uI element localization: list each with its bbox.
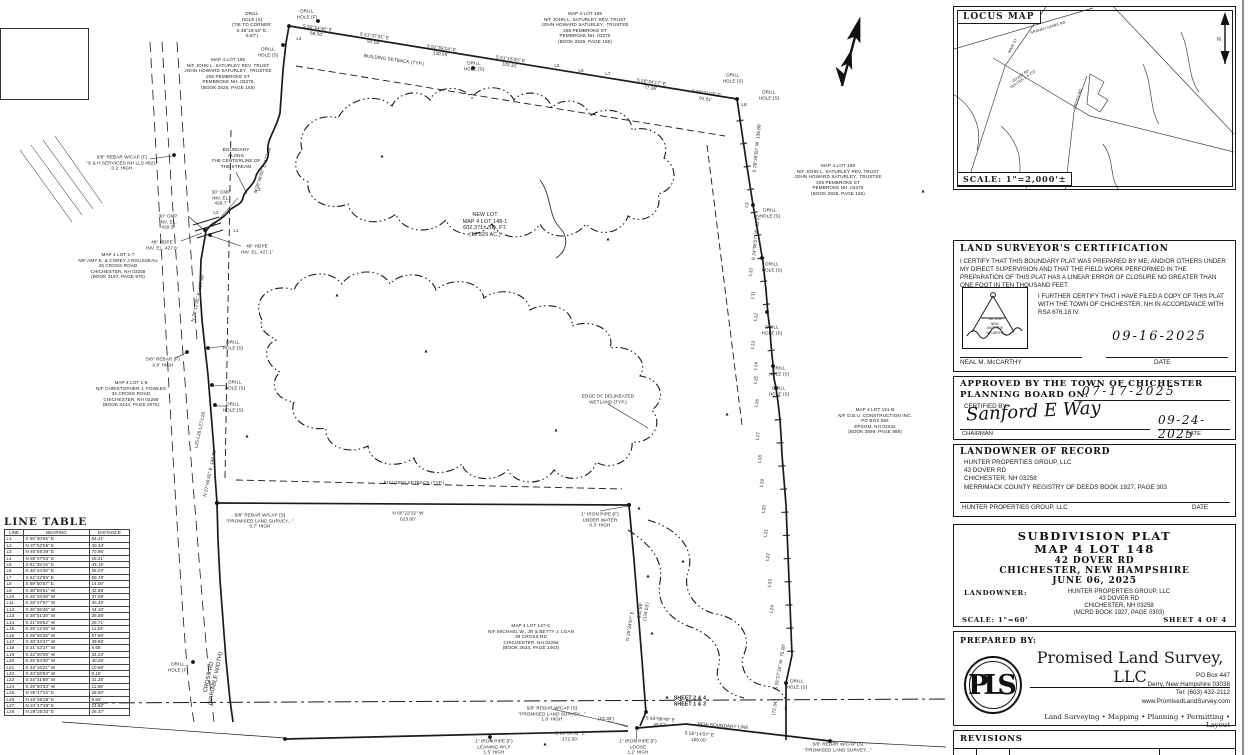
culvert-label: 30" CMP INV. EL. 429.5' [159, 214, 178, 231]
line-number-label: L20 [761, 505, 768, 514]
line-number-label: L1 [233, 228, 238, 234]
drill-hole-label: DRILL HOLE (S) [464, 60, 485, 71]
tree-symbol: ▴ [665, 694, 668, 701]
bearing-label: S 60°04'09" E 172.50' [555, 730, 585, 741]
approval-panel: APPROVED BY THE TOWN OF CHICHESTER PLANN… [953, 376, 1236, 440]
abutter-label: MAP 4 LOT 1-7 N/F AMY E. & COREY J ROUSS… [78, 252, 157, 280]
monument-label: 5/8" REBAR (F) 0.9' HIGH [146, 356, 180, 367]
line-number-label: L7 [605, 71, 610, 77]
pls-logo-monogram: PLS [968, 670, 1012, 701]
monument-label: 1" IRON PIPE (F) LEANING W'LY 1.5' HIGH [475, 739, 512, 755]
bearing-label: S 51°37'31" E 91.08' [359, 31, 390, 46]
drill-hole-label: DRILL HOLE (S) [762, 324, 783, 335]
line-number-label: L13 [750, 341, 757, 350]
landowner-record-panel: LANDOWNER OF RECORD HUNTER PROPERTIES GR… [953, 444, 1236, 517]
stream-label: BOUNDARY ALONG THE CENTERLINE OF THE STR… [212, 147, 261, 169]
line-number-label: L18 [757, 455, 764, 464]
company-address-line: Derry, New Hampshire 03038 [1072, 681, 1230, 690]
landowner-record-line: 43 DOVER RD [964, 467, 1167, 475]
company-address-line: PO Box 447 [1072, 672, 1230, 681]
bearing-label: S 55°14'07" E 159.00' [684, 730, 714, 743]
company-website: www.PromisedLandSurvey.com [1072, 698, 1230, 707]
locus-map-inner-border [957, 10, 1233, 187]
chairman-signature: Sanford E Way [966, 397, 1102, 425]
chairman-label: CHAIRMAN [962, 431, 993, 437]
locus-map-scale: SCALE: 1"=2,000'± [957, 172, 1072, 186]
line-number-label: L9 [744, 202, 750, 208]
approval-date-handwritten: 07-17-2025 [1082, 384, 1176, 398]
landowner-record-line: HUNTER PROPERTIES GROUP, LLC [964, 459, 1167, 467]
tie-label: (72.34') [771, 699, 779, 716]
road-label: CROSS RD (VARIABLE WIDTH) [200, 650, 225, 706]
culvert-label: 30" CMP INV. EL. 428.7' [212, 190, 231, 207]
plat-title: SUBDIVISION PLAT [954, 529, 1235, 543]
drill-hole-label: DRILL HOLE (S) [769, 385, 790, 396]
date-label: DATE [1154, 359, 1171, 366]
prepared-by-label: PREPARED BY: [960, 635, 1037, 645]
surveyor-certification-panel: LAND SURVEYOR'S CERTIFICATION I CERTIFY … [953, 240, 1236, 372]
tree-symbol: ▴ [650, 630, 653, 637]
tree-symbol: ▴ [606, 236, 609, 243]
line-number-label: L22 [765, 553, 772, 562]
drill-hole-label: DRILL HOLE (S) (TIE TO CORNER: S 48°16'4… [232, 11, 272, 39]
culvert-label: 48" HDPE INV. EL. 427.6' [146, 239, 178, 250]
bearing-label: N 26°48'00" E 177.94' [253, 146, 273, 194]
abutter-label: MAP 4 LOT 169 N/F JOHN L. SATURLEY REV. … [184, 57, 271, 91]
bearing-label: N 60°22'22" W 623.00' [392, 510, 423, 521]
drill-hole-label: DRILL HOLE (S) [223, 339, 244, 350]
survey-plat-sheet: DRILL HOLE (S) (TIE TO CORNER: S 48°16'4… [0, 0, 1251, 755]
setback-label: BUILDING SETBACK (TYP.) [384, 480, 445, 486]
title-landowner-line: 43 DOVER RD [1034, 596, 1204, 603]
locus-map-panel: LOCUS MAP SCALE: 1"=2,000'± [953, 6, 1236, 190]
line-number-label: L15 [753, 376, 760, 385]
surveyor-name: NEAL M. McCARTHY [960, 359, 1022, 366]
company-address-line: Tel: (603) 432-2112 [1072, 689, 1230, 698]
bearing-label: S 26°38'50" W 138.89' [752, 123, 763, 173]
approval-date-label: DATE [1186, 431, 1201, 437]
bearing-label: S 63°58'49" E 49.57' [645, 715, 675, 728]
abutter-label: MAP 4 LOT 1-8 N/F CHRISTOPHER J. FOWLES … [96, 380, 166, 408]
line-number-label: L12 [753, 313, 760, 322]
line-number-label: L2 [213, 210, 218, 216]
revisions-panel: REVISIONS [953, 730, 1236, 755]
tree-symbol: ▴ [543, 741, 546, 748]
drill-hole-label: DRILL HOLE (S) [225, 379, 246, 390]
title-scale: SCALE: 1"=60' [962, 616, 1028, 624]
certification-paragraph-1: I CERTIFY THAT THIS BOUNDARY PLAT WAS PR… [960, 258, 1230, 290]
abutter-label: MAP 4 LOT 169 N/F JOHN L. SATURLEY REV. … [541, 11, 628, 45]
line-number-label: L4 [296, 36, 301, 42]
revisions-title: REVISIONS [960, 734, 1023, 744]
line-number-label: L23 [767, 579, 774, 588]
monument-label: 5/8" REBAR W/CAP (S) "PROMISED LAND SURV… [226, 513, 293, 530]
drill-hole-label: DRILL HOLE (S) [762, 261, 783, 272]
tree-symbol: ▴ [380, 153, 383, 160]
bearing-label: S 51°16'35" E 103.31' [495, 54, 526, 69]
certification-paragraph-2: I FURTHER CERTIFY THAT I HAVE FILED A CO… [1038, 293, 1230, 317]
pls-logo: PLS [964, 656, 1022, 714]
tree-symbol: ▴ [424, 348, 427, 355]
title-sheet-number: SHEET 4 OF 4 [1163, 616, 1227, 624]
landowner-date-label: DATE [1192, 504, 1208, 511]
sheet-match-label: SHEET 2 & 4 SHEET 1 & 3 [674, 696, 706, 709]
new-boundary-label: NEW BOUNDARY LINE [697, 721, 748, 730]
bearing-label: N 26°12'35" E 187.69' [190, 274, 206, 322]
title-landowner-label: LANDOWNER: [964, 589, 1027, 597]
line-number-label: L11 [750, 291, 757, 299]
signature-line [960, 357, 1082, 358]
tree-symbol: ▴ [725, 411, 728, 418]
drill-hole-label: DRILL HOLE (S) [759, 89, 780, 100]
plat-date: JUNE 06, 2025 [954, 576, 1235, 586]
revisions-divider [1009, 748, 1010, 755]
revisions-header-line [954, 748, 1235, 749]
revisions-divider [976, 748, 977, 755]
monument-label: 5/8" REBAR W/CAP (F) "S & H SERVICES NH … [86, 155, 157, 172]
line-table-title: LINE TABLE [4, 516, 130, 528]
bearing-label: N 27°46'45" E 146.85' [202, 449, 218, 497]
line-number-label: L5 [554, 63, 559, 69]
culvert-label: 48" HDPE INV. EL. 427.1' [241, 243, 273, 254]
monument-label: 5/8" REBAR W/CAP (S) "PROMISED LAND SURV… [518, 706, 585, 723]
drill-hole-label: DRILL HOLE (S) [787, 678, 808, 689]
monument-label: 5/8" REBAR W/CAP (S) "PROMISED LAND SURV… [804, 741, 871, 752]
locus-map-title: LOCUS MAP [957, 10, 1041, 24]
abutter-label: MAP 4 LOT 169 N/F JOHN L. SATURLEY REV. … [794, 163, 881, 197]
line-number-label: L3 [255, 187, 260, 193]
bearing-label: S 24°56'07" W 61.22' [751, 214, 761, 261]
title-block-panel: SUBDIVISION PLAT MAP 4 LOT 148 42 DOVER … [953, 524, 1236, 627]
tree-symbol: ▴ [646, 573, 649, 580]
line-number-label: L8 [741, 102, 746, 108]
tree-symbol: ▴ [554, 427, 557, 434]
tree-symbol: ▴ [245, 433, 248, 440]
tree-symbol: ▴ [921, 188, 924, 195]
line-table: LINE TABLE LINEBEARINGDISTANCE L1S 60°30… [4, 516, 130, 716]
line-number-label: L17 [755, 432, 762, 441]
landowner-signature-line [960, 502, 1230, 503]
bearing-label: N 26°34'57" E [625, 611, 636, 641]
new-lot-label: NEW LOT MAP 4 LOT 148-1 602,371± SQ. FT.… [463, 212, 508, 238]
drill-hole-label: DRILL HOLE (F) [297, 8, 317, 19]
adjacent-sheet-corner [0, 28, 89, 100]
line-number-label: L19 [759, 479, 766, 488]
bearing-label: S 50°54'17" E 77.36' [636, 77, 667, 92]
drill-hole-label: DRILL HOLE (S) [760, 207, 781, 218]
line-number-label: L16 [754, 399, 761, 408]
certification-date-handwritten: 09-16-2025 [1112, 329, 1207, 344]
surveyor-seal: No. 1199 NEAL MATTHEW McCARTHY [962, 287, 1028, 349]
bearing-label: S 50°54'46" E 68.50' [302, 23, 333, 38]
drill-hole-label: DRILL HOLE (F) [168, 661, 188, 672]
certification-title: LAND SURVEYOR'S CERTIFICATION [960, 244, 1169, 254]
plat-address: 42 DOVER RD [954, 556, 1235, 566]
plat-map-lot: MAP 4 LOT 148 [954, 542, 1235, 556]
landowner-signature-name: HUNTER PROPERTIES GROUP, LLC [962, 504, 1068, 511]
tree-symbol: ▴ [681, 558, 684, 565]
line-number-label: L24 [769, 605, 776, 614]
north-arrow [831, 14, 867, 88]
drill-hole-label: DRILL HOLE (S) [258, 46, 279, 57]
bearing-label: 350.88' (134.53') [636, 601, 650, 622]
line-number-label: L6 [578, 68, 583, 74]
landowner-record-line: CHICHESTER, NH 03258 [964, 475, 1167, 483]
plat-town: CHICHESTER, NEW HAMPSHIRE [954, 566, 1235, 576]
approval-signed-date: 09-24-2025 [1158, 413, 1235, 441]
bearing-label: S 50°21'15" E 91.61' [691, 88, 722, 103]
drill-hole-label: DRILL HOLE (S) [769, 365, 790, 376]
bearing-label: S 28°27'16" W 75.00' [773, 644, 787, 691]
bearing-label: S 52°59'24" E 130.55' [426, 43, 457, 58]
seal-name-3: McCARTHY [963, 332, 1027, 336]
line-number-label: L25-L26-L27-L28 [193, 411, 206, 448]
drill-hole-label: DRILL HOLE (S) [723, 72, 744, 83]
tree-symbol: ▴ [637, 505, 640, 512]
drill-hole-label: DRILL HOLE (S) [223, 401, 244, 412]
tree-symbol: ▴ [335, 292, 338, 299]
revisions-divider [1159, 748, 1160, 755]
title-landowner-line: HUNTER PROPERTIES GROUP, LLC [1034, 589, 1204, 596]
title-landowner-line: CHICHESTER, NH 03258 [1034, 603, 1204, 610]
line-number-label: L21 [763, 529, 770, 538]
landowner-record-title: LANDOWNER OF RECORD [960, 447, 1110, 457]
wetland-label: EDGE OF DELINEATED WETLAND (TYP.) [582, 393, 634, 404]
monument-label: 1" IRON PIPE (F) UNDER WATER 0.3' HIGH [581, 512, 618, 529]
line-number-label: L10 [748, 268, 755, 277]
tie-label: (16.35') [598, 716, 614, 722]
line-number-label: L14 [753, 362, 760, 371]
abutter-label: MAP 4 LOT 147-C N/F MICHAEL W., JR & BET… [488, 623, 574, 651]
landowner-record-line: MERRIMACK COUNTY REGISTRY OF DEEDS BOOK … [964, 484, 1167, 492]
line-table-row: L28N 29°25'33" E26.37' [5, 709, 130, 715]
setback-label: BUILDING SETBACK (TYP.) [364, 53, 425, 67]
prepared-by-panel: PREPARED BY: PLS Promised Land Survey, L… [953, 631, 1236, 726]
date-line [1106, 357, 1228, 358]
abutter-label: MAP 4 LOT 151-B N/F D.B.U. CONSTRUCTION … [838, 407, 912, 435]
company-services: Land Surveying • Mapping • Planning • Pe… [1020, 713, 1230, 729]
monument-label: 1" IRON PIPE (F) LOOSE 1.2' HIGH [619, 739, 656, 755]
line-table-grid: LINEBEARINGDISTANCE L1S 60°30'55" E84.41… [4, 529, 130, 716]
